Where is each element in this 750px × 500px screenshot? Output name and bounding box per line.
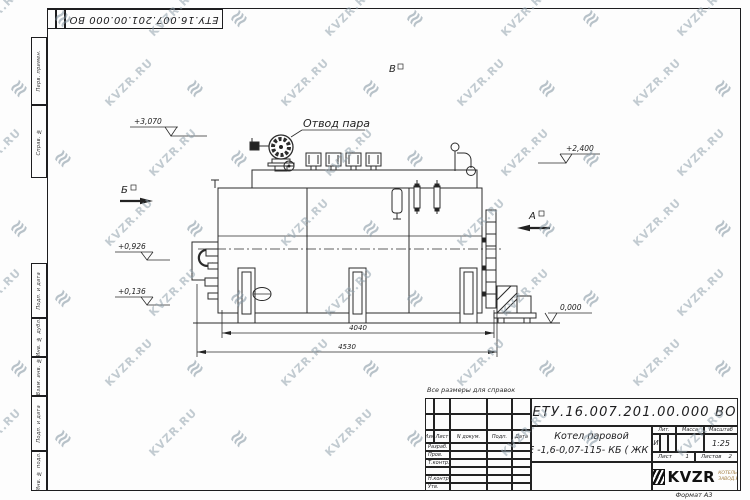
margin-field-podp-data-2: Подп. и дата [31, 396, 47, 451]
tb-blank [668, 434, 676, 452]
tb-blank [512, 475, 531, 483]
margin-field-inv-dubl: Инв. № дубл. [31, 318, 47, 357]
tb-blank [450, 398, 487, 414]
tb-sheets-total: Листов2 [695, 452, 738, 462]
tb-sheet: Лист1 [652, 452, 695, 462]
tb-blank [450, 459, 487, 467]
tb-blank [487, 467, 512, 475]
tb-blank [512, 398, 531, 414]
tb-row-razrab: Разраб. [425, 443, 450, 451]
tb-blank [425, 414, 434, 430]
tb-col-izm: Изм [425, 430, 434, 443]
tb-mass-header: Масса [676, 426, 704, 434]
kvzr-logo-icon [652, 469, 665, 485]
margin-field-podp-data-1: Подп. и дата [31, 263, 47, 318]
tb-row-tkontr: Т.контр. [425, 459, 450, 467]
tb-blank [487, 483, 512, 491]
tb-blank [512, 414, 531, 430]
tb-blank [450, 451, 487, 459]
tb-lit-value: И [652, 434, 660, 452]
tb-scale-value: 1:25 [704, 434, 738, 452]
top-stamp-designation: ЕТУ.16.007.201.00.000 ВО [65, 9, 223, 29]
format-note: Формат А3 [648, 491, 740, 499]
tb-blank [487, 443, 512, 451]
tb-col-list: Лист [434, 430, 450, 443]
tb-lit-header: Лит. [652, 426, 676, 434]
tb-blank [512, 443, 531, 451]
tb-company: KVZR КОТЕЛЬНЫЙ ЗАВОД.РУ [652, 462, 738, 491]
tb-blank [487, 475, 512, 483]
tb-blank [450, 475, 487, 483]
tb-blank [425, 398, 434, 414]
tb-blank [450, 467, 487, 475]
kvzr-logo-text: KVZR [668, 468, 716, 486]
tb-blank [425, 467, 450, 475]
tb-row-utv: Утв. [425, 483, 450, 491]
tb-scale-header: Масштаб [704, 426, 738, 434]
tb-blank [434, 398, 450, 414]
tb-blank [487, 414, 512, 430]
drawing-sheet: Перв. примен. Справ. № Подп. и дата Инв.… [0, 0, 750, 500]
tb-blank [512, 483, 531, 491]
tb-blank [531, 462, 652, 491]
margin-field-perv-primen: Перв. примен. [31, 37, 47, 105]
tb-product-name: Котел паровой Е -1,6-0,07-115- КБ ( ЖК ) [531, 426, 652, 462]
tb-blank [487, 459, 512, 467]
product-name-line1: Котел паровой [554, 430, 629, 444]
tb-col-sign: Подп. [487, 430, 512, 443]
tb-blank [450, 414, 487, 430]
tb-blank [512, 459, 531, 467]
margin-field-vzam-inv: Взам. инв. № [31, 357, 47, 396]
tb-blank [450, 443, 487, 451]
tb-blank [434, 414, 450, 430]
margin-field-sprav-no: Справ. № [31, 105, 47, 178]
tb-blank [450, 483, 487, 491]
tb-row-nkontr: Н.контр. [425, 475, 450, 483]
tb-row-prov: Пров. [425, 451, 450, 459]
tb-blank [512, 467, 531, 475]
tb-blank [512, 451, 531, 459]
reference-note: Все размеры для справок [427, 386, 515, 394]
tb-mass-value [676, 434, 704, 452]
product-name-line2: Е -1,6-0,07-115- КБ ( ЖК ) [531, 444, 652, 458]
tb-blank [487, 398, 512, 414]
top-stamp-cell-1 [47, 9, 56, 29]
tb-col-doc: N докум. [450, 430, 487, 443]
tb-blank [487, 451, 512, 459]
tb-blank [660, 434, 668, 452]
kvzr-logo-subtext: КОТЕЛЬНЫЙ ЗАВОД.РУ [718, 471, 738, 483]
margin-field-inv-podl: Инв. № подл. [31, 451, 47, 491]
tb-designation: ЕТУ.16.007.201.00.000 ВО [531, 398, 738, 426]
top-stamp-cell-2 [56, 9, 65, 29]
tb-col-date: Дата [512, 430, 531, 443]
